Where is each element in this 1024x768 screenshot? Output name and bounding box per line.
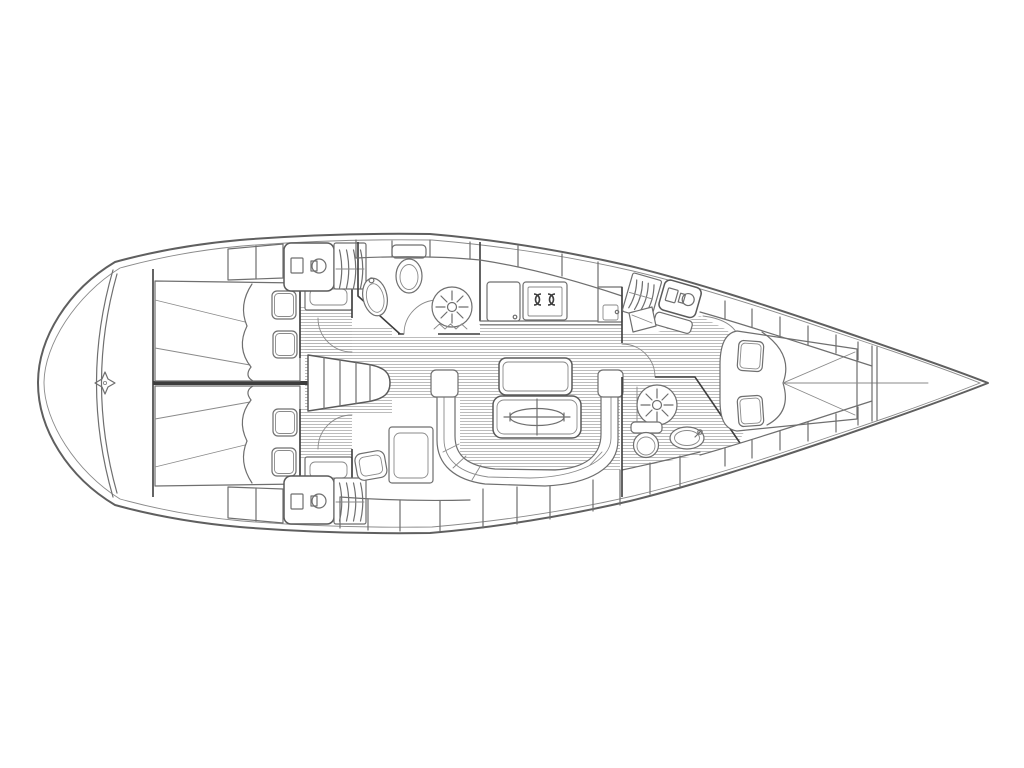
saloon-table — [493, 358, 581, 438]
aft-head — [358, 242, 480, 334]
navigation-station — [354, 427, 433, 483]
yacht-floor-plan: Sailing yacht interior layout floor plan — [0, 0, 1024, 768]
fridge-door-icon — [487, 282, 520, 321]
hanging-locker-icon — [334, 243, 366, 289]
toilet-icon — [392, 245, 426, 293]
pillow-icon — [737, 395, 764, 427]
shower-rose-icon — [432, 287, 472, 329]
hanging-locker-icon — [334, 478, 366, 524]
shower-rose-icon — [637, 385, 677, 425]
washbasin-cabinet-icon — [284, 476, 334, 524]
washbasin-cabinet-icon — [284, 243, 334, 291]
nav-seat — [354, 450, 388, 482]
page: Sailing yacht interior layout floor plan — [0, 0, 1024, 768]
two-burner-stove-icon — [523, 282, 567, 320]
oval-sink-icon — [670, 427, 704, 449]
pillow-icon — [737, 340, 764, 372]
rudder-post-icon — [95, 372, 115, 394]
bow-anchor-locker — [872, 346, 877, 421]
